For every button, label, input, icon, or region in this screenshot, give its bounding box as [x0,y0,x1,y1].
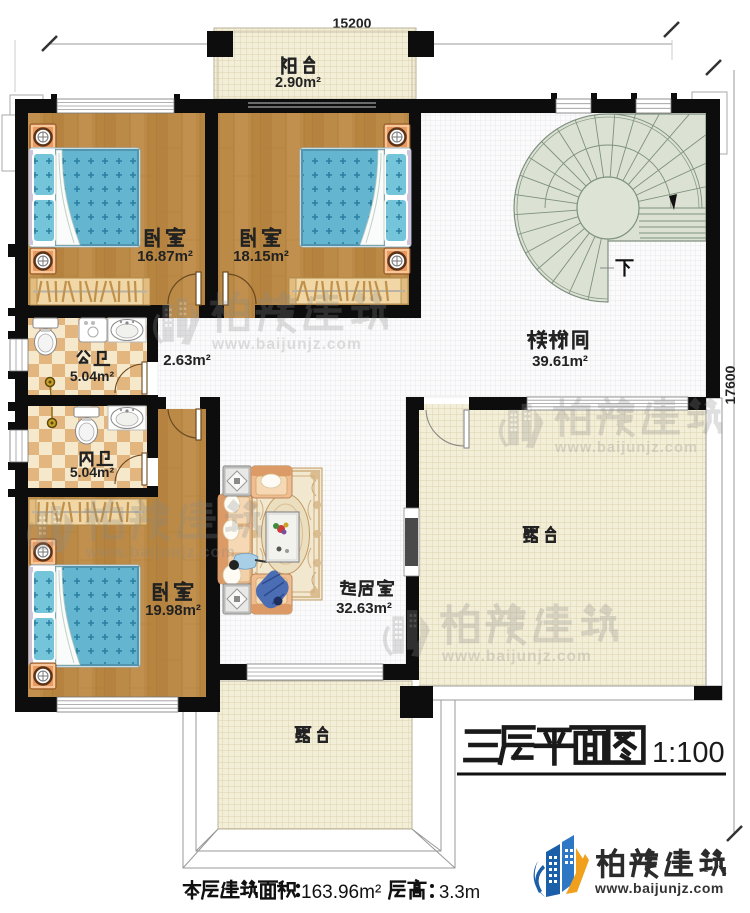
svg-text:www.baijunjz.com: www.baijunjz.com [85,544,236,561]
svg-text:2.63m²: 2.63m² [163,352,211,369]
svg-text:16.87m²: 16.87m² [137,248,193,265]
svg-text:17600: 17600 [722,365,738,404]
svg-text:2.90m²: 2.90m² [275,75,321,91]
svg-text:www.baijunjz.com: www.baijunjz.com [441,648,592,665]
svg-text:www.baijunjz.com: www.baijunjz.com [594,880,724,896]
svg-text:www.baijunjz.com: www.baijunjz.com [211,336,362,353]
svg-text:19.98m²: 19.98m² [145,602,201,619]
svg-text:18.15m²: 18.15m² [233,248,289,265]
svg-text:163.96m²: 163.96m² [301,882,381,903]
svg-text:www.baijunjz.com: www.baijunjz.com [554,440,698,456]
svg-text:32.63m²: 32.63m² [336,600,392,617]
svg-text:5.04m²: 5.04m² [70,368,115,384]
svg-text:39.61m²: 39.61m² [532,353,588,370]
svg-text:1:100: 1:100 [652,737,725,769]
svg-text:5.04m²: 5.04m² [70,464,115,480]
svg-text:3.3m: 3.3m [439,881,480,902]
